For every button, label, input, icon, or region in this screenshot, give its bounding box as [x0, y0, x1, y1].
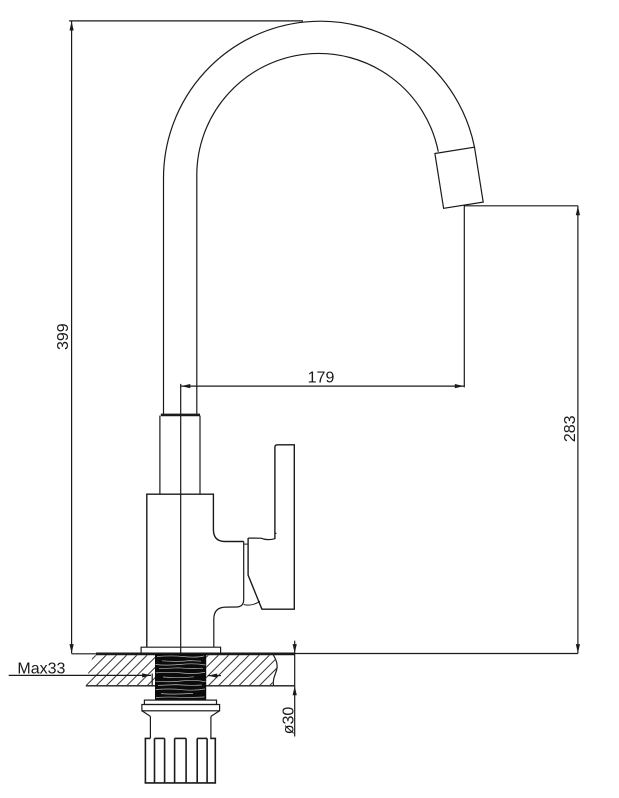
svg-text:179: 179 — [308, 369, 335, 386]
svg-text:ø30: ø30 — [281, 707, 298, 735]
svg-text:399: 399 — [55, 323, 72, 350]
svg-text:283: 283 — [562, 415, 579, 442]
